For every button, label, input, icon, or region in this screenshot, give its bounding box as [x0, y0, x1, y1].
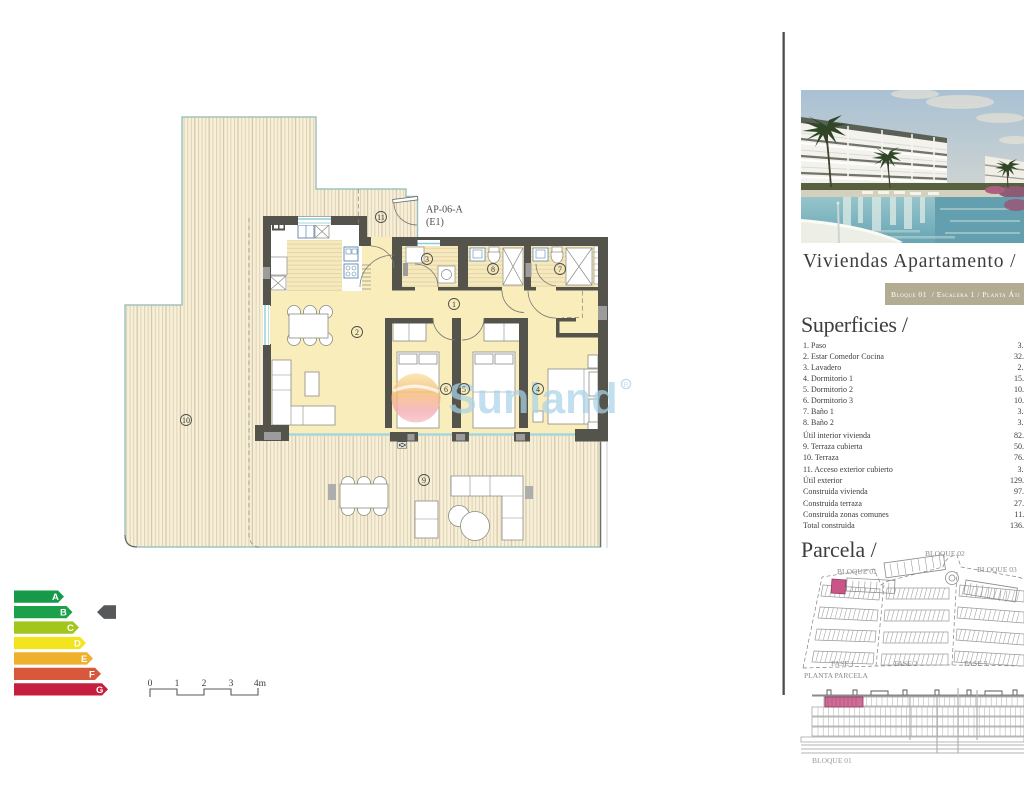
svg-text:2: 2 [355, 328, 359, 337]
svg-text:9: 9 [422, 476, 426, 485]
svg-text:E: E [81, 654, 87, 665]
svg-text:5: 5 [462, 385, 466, 394]
svg-text:F: F [89, 669, 95, 680]
svg-text:BLOQUE 01: BLOQUE 01 [812, 756, 852, 765]
svg-text:BLOQUE 03: BLOQUE 03 [977, 565, 1017, 574]
svg-text:7: 7 [558, 265, 562, 274]
svg-text:FASE 3: FASE 3 [964, 659, 988, 668]
svg-text:1: 1 [452, 300, 456, 309]
svg-text:Sunland: Sunland [448, 375, 618, 423]
svg-text:BLOQUE 02: BLOQUE 02 [925, 549, 965, 558]
svg-text:3: 3 [229, 679, 234, 689]
svg-text:11: 11 [377, 213, 385, 222]
svg-text:BLOQUE 01: BLOQUE 01 [837, 567, 877, 576]
svg-text:FASE 1: FASE 1 [831, 659, 855, 668]
svg-text:10: 10 [182, 416, 190, 425]
svg-text:6: 6 [444, 385, 448, 394]
svg-text:(E1): (E1) [426, 217, 444, 228]
svg-text:4m: 4m [254, 679, 267, 689]
svg-text:AP-06-A: AP-06-A [426, 205, 463, 216]
svg-text:2: 2 [202, 679, 207, 689]
svg-text:R: R [624, 382, 629, 389]
svg-text:1: 1 [175, 679, 180, 689]
svg-text:G: G [96, 685, 103, 696]
svg-text:A: A [52, 592, 59, 603]
svg-text:4: 4 [536, 385, 540, 394]
svg-text:FASE 2: FASE 2 [894, 659, 918, 668]
svg-text:D: D [74, 638, 81, 649]
svg-text:C: C [67, 623, 74, 634]
svg-text:B: B [60, 608, 67, 619]
svg-text:8: 8 [491, 265, 495, 274]
svg-text:3: 3 [425, 255, 429, 264]
svg-text:0: 0 [148, 679, 153, 689]
svg-text:PLANTA PARCELA: PLANTA PARCELA [804, 671, 869, 680]
